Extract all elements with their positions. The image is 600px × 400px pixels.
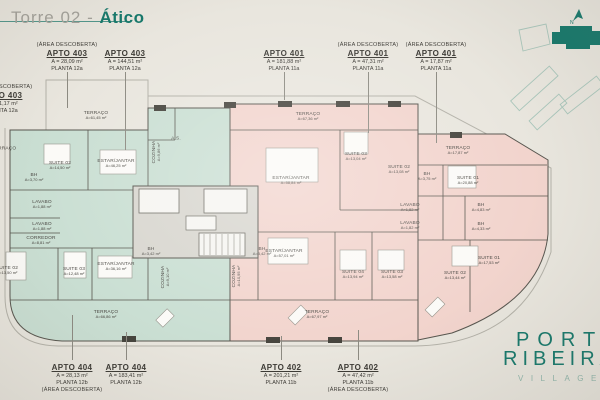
room-label: SUITE 02A=13,50 m² — [0, 266, 18, 276]
callout-leader-line — [67, 72, 68, 108]
room-label: SUITE 02A=13,08 m² — [388, 165, 410, 175]
room-label: ESTAR/JANTARA=46,25 m² — [97, 159, 134, 169]
room-label: CORREDORA=8,81 m² — [26, 236, 55, 246]
room-label: TERRAÇOA=61,45 m² — [84, 111, 109, 121]
room-label: TERRAÇOA=67,36 m² — [296, 112, 321, 122]
elevator-shaft — [204, 189, 247, 213]
room-label: LAVABOA=1,82 m² — [400, 221, 419, 231]
room-label: SUITE 03A=12,48 m² — [63, 267, 85, 277]
room-label: A.S. — [171, 136, 181, 142]
callout-leader-line — [72, 315, 73, 360]
room-label: SUITE 01A=17,53 m² — [478, 256, 500, 266]
room-label: SUITE 02A=14,50 m² — [49, 161, 71, 171]
room-label: TERRAÇO — [0, 146, 16, 152]
apto-callout: (ÁREA DESCOBERTA)APTO 401A = 17,87 m²PLA… — [388, 42, 484, 73]
room-label: BHA=3,42 m² — [142, 247, 161, 257]
logo-ribeira: RIBEIRA — [503, 350, 600, 369]
callout-leader-line — [436, 72, 437, 143]
room-label: BHA=3,70 m² — [25, 173, 44, 183]
room-label: SUITE 03A=13,04 m² — [345, 152, 367, 162]
room-label: LAVABOA=1,82 m² — [400, 203, 419, 213]
title-highlight: Ático — [99, 8, 144, 27]
room-label: SUITE 04A=13,94 m² — [342, 270, 364, 280]
stairs — [199, 233, 245, 256]
apto-callout: APTO 403A = 144,51 m²PLANTA 12a — [77, 42, 173, 73]
elevator-shaft — [139, 189, 179, 213]
room-label: SUITE 02A=13,44 m² — [444, 271, 466, 281]
callout-leader-line — [284, 72, 285, 100]
title-prefix: Torre 02 - — [11, 8, 99, 27]
apto-callout: APTO 401A = 181,88 m²PLANTA 11a — [236, 42, 332, 73]
room-label: COZINHAA=10,95 m² — [232, 265, 242, 288]
room-label: TERRAÇOA=17,87 m² — [446, 146, 471, 156]
site-key-plan: N — [511, 9, 600, 130]
room-label: ESTAR/JANTARA=57,01 m² — [265, 249, 302, 259]
room-label: TERRAÇOA=66,86 m² — [94, 310, 119, 320]
callout-leader-line — [358, 330, 359, 360]
north-arrow-icon: N — [570, 9, 583, 26]
apto-callout: APTO 402A = 47,42 m²PLANTA 11b(ÁREA DESC… — [310, 363, 406, 394]
callout-leader-line — [368, 72, 369, 133]
floorplan-page: N Torre 02 - Ático (ÁREA DESCOBERTA)APTO… — [0, 0, 600, 400]
room-label: LAVABOA=1,88 m² — [32, 222, 51, 232]
room-label: BHA=3,75 m² — [418, 172, 437, 182]
room-label: TERRAÇOA=67,97 m² — [305, 310, 330, 320]
tower-highlight — [552, 26, 600, 49]
room-label: BHA=4,83 m² — [472, 203, 491, 213]
room-label: ESTAR/JANTARA=36,16 m² — [97, 262, 134, 272]
room-label: BHA=4,33 m² — [472, 222, 491, 232]
room-label: COZINHAA=9,86 m² — [152, 141, 162, 164]
callout-leader-line — [126, 332, 127, 360]
room-label: SUITE 01A=20,88 m² — [457, 176, 479, 186]
page-title: Torre 02 - Ático — [11, 8, 144, 28]
apto-callout-left-cut: (ÁREA DESCOBERTA)APTO 403A = 41,17 m²PLA… — [0, 84, 50, 115]
room-label: ESTAR/JANTARA=58,84 m² — [272, 176, 309, 186]
room-label: COZINHAA=9,10 m² — [161, 266, 171, 289]
room-label: LAVABOA=1,88 m² — [32, 200, 51, 210]
brand-logo: PORTO RIBEIRA VILLAGE — [503, 331, 600, 383]
logo-village: VILLAGE — [518, 374, 600, 383]
room-label: SUITE 03A=13,58 m² — [381, 270, 403, 280]
north-label: N — [570, 20, 574, 26]
callout-leader-line — [281, 336, 282, 360]
apto-callout: APTO 404A = 183,41 m²PLANTA 12b — [78, 363, 174, 387]
callout-leader-line — [125, 72, 126, 150]
